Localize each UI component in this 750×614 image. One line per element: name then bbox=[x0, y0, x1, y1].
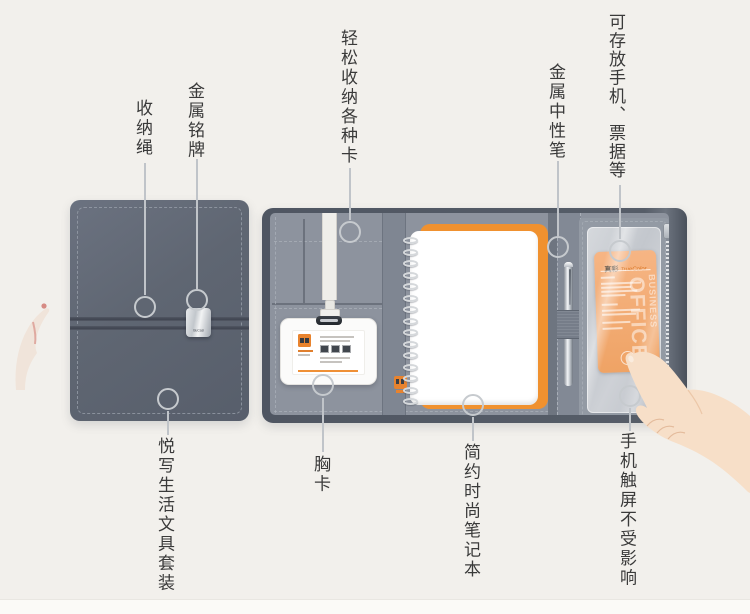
callout-circle-pen bbox=[547, 236, 569, 258]
label-touchscreen: 手机触屏不受影响 bbox=[618, 432, 635, 588]
callout-line-storage-rope bbox=[144, 163, 146, 295]
badge-text-bar bbox=[320, 357, 350, 359]
card-text-bar bbox=[601, 276, 615, 278]
badge-logo bbox=[298, 334, 311, 347]
callout-circle-set bbox=[157, 388, 179, 410]
callout-line-nameplate bbox=[196, 159, 198, 289]
card-text-bar bbox=[602, 303, 618, 305]
callout-line-pen bbox=[557, 161, 559, 236]
callout-circle-chest-card bbox=[312, 374, 334, 396]
metal-nameplate: BuCasi bbox=[186, 308, 211, 337]
badge-text-bar bbox=[320, 340, 350, 342]
faint-left-hand bbox=[0, 280, 70, 390]
spiral-rings bbox=[403, 237, 421, 405]
badge-barcode bbox=[342, 345, 351, 353]
badge-insert-card bbox=[292, 330, 365, 375]
label-chest-card: 胸卡 bbox=[312, 455, 329, 494]
callout-circle-pocket bbox=[609, 240, 631, 262]
label-phone-pocket: 可存放手机、票据等 bbox=[607, 13, 624, 180]
elastic-storage-rope bbox=[70, 326, 249, 330]
lanyard-strap bbox=[322, 213, 337, 300]
badge-text-bar bbox=[298, 350, 313, 352]
badge-barcode bbox=[331, 345, 340, 353]
card-text-bar bbox=[603, 327, 623, 329]
callout-circle-nameplate bbox=[186, 289, 208, 311]
page-section-divider bbox=[0, 599, 750, 614]
label-metal-nameplate: 金属铭牌 bbox=[186, 82, 203, 160]
stitched-border bbox=[77, 207, 242, 414]
callout-line-notebook bbox=[472, 417, 474, 441]
callout-line-cards bbox=[349, 168, 351, 220]
card-text-bar bbox=[601, 294, 625, 296]
pen-elastic-loop bbox=[557, 310, 579, 339]
card-slot-seam bbox=[303, 219, 305, 303]
badge-clip bbox=[316, 316, 342, 325]
badge-footer-stripe bbox=[298, 370, 358, 373]
label-fashion-notebook: 简约时尚笔记本 bbox=[462, 443, 479, 580]
callout-line-pocket bbox=[619, 185, 621, 239]
callout-circle-notebook bbox=[462, 394, 484, 416]
label-metal-gel-pen: 金属中性笔 bbox=[547, 63, 564, 161]
notebook-page bbox=[410, 231, 538, 405]
closed-notebook: BuCasi bbox=[70, 200, 249, 421]
badge-text-bar bbox=[320, 336, 354, 338]
callout-line-chest-card bbox=[322, 398, 324, 452]
nameplate-brand-text: BuCasi bbox=[193, 328, 204, 335]
label-storage-rope: 收纳绳 bbox=[134, 99, 151, 158]
product-infographic: BuCasi bbox=[0, 0, 750, 614]
badge-text-bar bbox=[298, 354, 310, 356]
badge-text-bar bbox=[320, 361, 342, 363]
elastic-storage-rope bbox=[70, 317, 249, 321]
label-stationery-set: 悦写生活文具套装 bbox=[156, 437, 173, 593]
zipper-pull bbox=[663, 223, 669, 239]
callout-circle-storage-rope bbox=[134, 296, 156, 318]
callout-circle-cards bbox=[339, 221, 361, 243]
badge-barcode bbox=[320, 345, 329, 353]
label-easy-card-storage: 轻松收纳各种卡 bbox=[339, 29, 356, 166]
callout-line-set bbox=[167, 411, 169, 435]
stitch-line bbox=[275, 217, 276, 413]
